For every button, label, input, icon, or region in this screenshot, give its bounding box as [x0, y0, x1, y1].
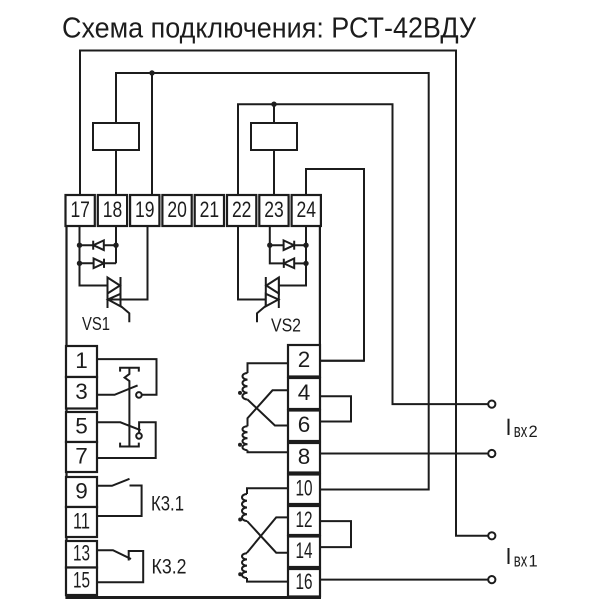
svg-text:4: 4	[298, 380, 311, 405]
svg-text:14: 14	[296, 538, 313, 563]
svg-text:11: 11	[73, 508, 90, 533]
svg-text:5: 5	[75, 413, 88, 438]
svg-text:3: 3	[75, 379, 88, 404]
svg-text:20: 20	[167, 197, 187, 222]
svg-text:вх: вх	[514, 421, 528, 441]
svg-text:8: 8	[298, 444, 311, 469]
svg-text:Схема подключения: РСТ-42ВДУ: Схема подключения: РСТ-42ВДУ	[62, 13, 477, 45]
svg-text:19: 19	[135, 197, 155, 222]
svg-text:24: 24	[297, 197, 317, 222]
svg-text:VS2: VS2	[271, 315, 301, 336]
svg-text:9: 9	[75, 478, 88, 503]
svg-text:вх: вх	[514, 551, 528, 571]
svg-text:VS1: VS1	[82, 313, 110, 334]
svg-text:6: 6	[298, 412, 311, 437]
svg-text:12: 12	[296, 507, 313, 532]
svg-text:16: 16	[296, 569, 313, 594]
svg-text:К3.1: К3.1	[151, 492, 184, 516]
svg-text:К3.2: К3.2	[152, 555, 187, 579]
svg-text:18: 18	[103, 197, 123, 222]
svg-text:15: 15	[73, 568, 90, 593]
svg-text:22: 22	[232, 197, 252, 222]
svg-text:17: 17	[70, 197, 90, 222]
svg-text:7: 7	[75, 443, 88, 468]
svg-text:2: 2	[529, 423, 538, 441]
svg-text:1: 1	[529, 553, 538, 571]
svg-text:23: 23	[264, 197, 284, 222]
svg-text:13: 13	[73, 541, 90, 566]
svg-text:1: 1	[75, 348, 88, 373]
svg-text:21: 21	[200, 197, 220, 222]
svg-text:2: 2	[298, 347, 311, 372]
svg-text:10: 10	[296, 476, 313, 501]
